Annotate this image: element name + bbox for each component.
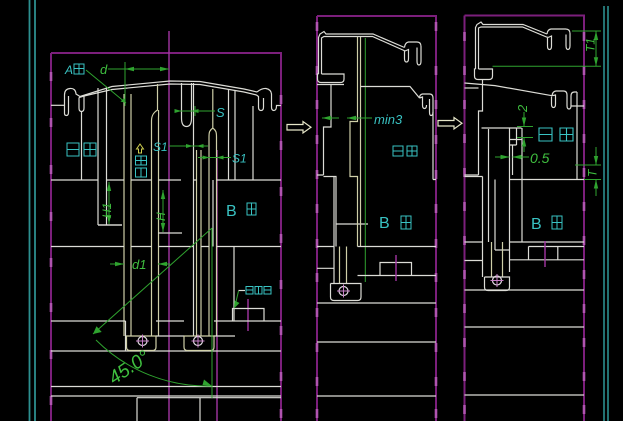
svg-text:0.5: 0.5 — [530, 150, 550, 166]
svg-text:d: d — [100, 62, 108, 77]
svg-text:S: S — [216, 105, 225, 120]
svg-text:S1: S1 — [232, 152, 247, 166]
svg-text:2: 2 — [515, 104, 530, 113]
svg-text:H1: H1 — [100, 203, 114, 218]
svg-text:B: B — [531, 216, 542, 233]
svg-text:S1: S1 — [153, 140, 168, 154]
svg-text:H: H — [154, 212, 168, 221]
svg-text:B: B — [226, 203, 237, 220]
svg-text:B: B — [379, 215, 390, 232]
svg-text:min3: min3 — [374, 112, 403, 127]
svg-text:T1: T1 — [584, 38, 598, 52]
svg-text:A: A — [64, 63, 73, 77]
svg-text:d1: d1 — [132, 257, 146, 272]
